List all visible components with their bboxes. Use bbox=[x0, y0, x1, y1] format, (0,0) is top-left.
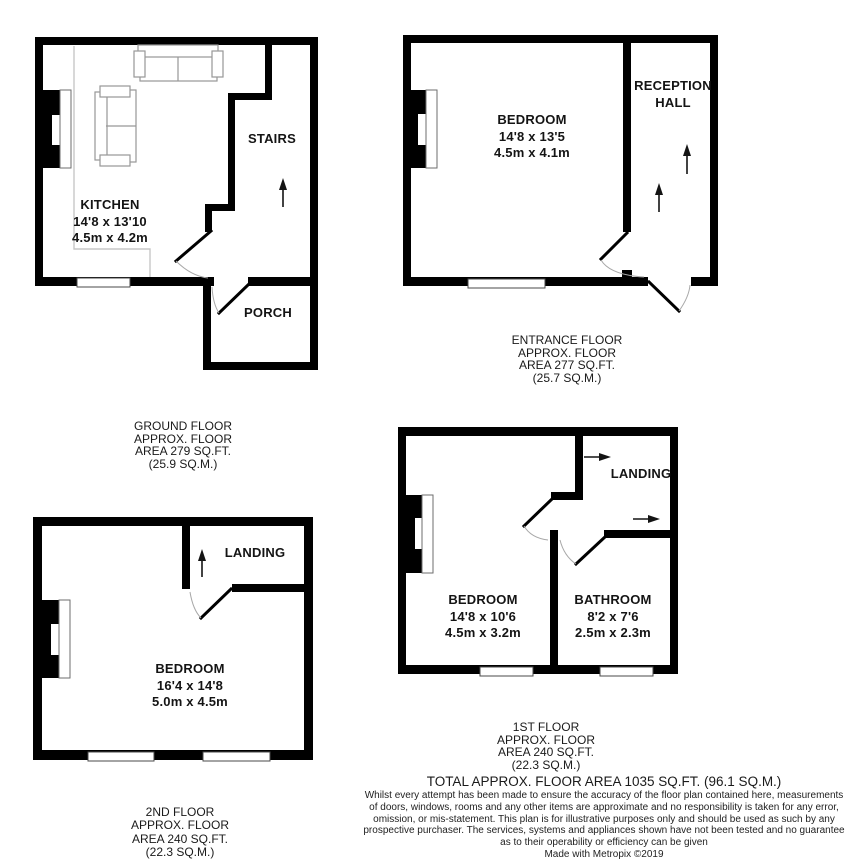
reception-hall-room-label: RECEPTION HALL bbox=[616, 77, 730, 111]
second-bedroom-metric-dims: 5.0m x 4.5m bbox=[120, 694, 260, 711]
entrance-caption-line1: ENTRANCE FLOOR bbox=[491, 334, 643, 347]
ground-stairs-up-arrow-icon bbox=[279, 178, 287, 207]
first-caption-line1: 1ST FLOOR bbox=[470, 721, 622, 734]
second-landing-room-label: LANDING bbox=[217, 545, 293, 562]
stairs-name: STAIRS bbox=[236, 131, 308, 148]
ground-caption-line4: (25.9 SQ.M.) bbox=[107, 458, 259, 471]
second-landing-door bbox=[190, 589, 231, 618]
reception-hall-up-arrow-icon bbox=[683, 144, 691, 174]
disclaimer-text: Whilst every attempt has been made to en… bbox=[360, 790, 848, 861]
stairs-room-label: STAIRS bbox=[236, 131, 308, 148]
bathroom-name: BATHROOM bbox=[545, 592, 681, 609]
entrance-bedroom-imperial-dims: 14'8 x 13'5 bbox=[462, 129, 602, 146]
first-landing-name: LANDING bbox=[603, 466, 679, 483]
entrance-caption-line4: (25.7 SQ.M.) bbox=[491, 372, 643, 385]
porch-room-label: PORCH bbox=[232, 305, 304, 322]
ground-floor-caption: GROUND FLOOR APPROX. FLOOR AREA 279 SQ.F… bbox=[107, 420, 259, 470]
reception-hall-line2: HALL bbox=[616, 94, 730, 111]
first-bedroom-metric-dims: 4.5m x 3.2m bbox=[413, 625, 553, 642]
ground-caption-line3: AREA 279 SQ.FT. bbox=[107, 445, 259, 458]
ground-caption-line1: GROUND FLOOR bbox=[107, 420, 259, 433]
first-caption-line3: AREA 240 SQ.FT. bbox=[470, 746, 622, 759]
ground-kitchen-door bbox=[176, 231, 211, 278]
entrance-bedroom-name: BEDROOM bbox=[462, 112, 602, 129]
disclaimer-line2: of doors, windows, rooms and any other i… bbox=[360, 802, 848, 814]
reception-hall-line1: RECEPTION bbox=[616, 77, 730, 94]
disclaimer-line4: prospective purchaser. The services, sys… bbox=[360, 825, 848, 837]
sofa-large bbox=[134, 45, 223, 81]
kitchen-imperial-dims: 14'8 x 13'10 bbox=[45, 214, 175, 231]
second-landing-up-arrow-icon bbox=[198, 549, 206, 577]
second-caption-line2: APPROX. FLOOR bbox=[104, 819, 256, 832]
disclaimer-line5: as to their operability or efficiency ca… bbox=[360, 837, 848, 849]
second-landing-name: LANDING bbox=[217, 545, 293, 562]
second-bedroom-name: BEDROOM bbox=[120, 661, 260, 678]
first-landing-right-arrow-icon bbox=[584, 453, 611, 461]
disclaimer-line1: Whilst every attempt has been made to en… bbox=[360, 790, 848, 802]
entrance-floor-caption: ENTRANCE FLOOR APPROX. FLOOR AREA 277 SQ… bbox=[491, 334, 643, 384]
disclaimer-line3: omission, or mis-statement. This plan is… bbox=[360, 814, 848, 826]
metropix-credit: Made with Metropix ©2019 bbox=[360, 849, 848, 861]
entrance-bedroom-metric-dims: 4.5m x 4.1m bbox=[462, 145, 602, 162]
bathroom-room-label: BATHROOM 8'2 x 7'6 2.5m x 2.3m bbox=[545, 592, 681, 642]
second-caption-line1: 2ND FLOOR bbox=[104, 806, 256, 819]
entrance-floor-plan bbox=[403, 35, 718, 288]
first-floor-caption: 1ST FLOOR APPROX. FLOOR AREA 240 SQ.FT. … bbox=[470, 721, 622, 771]
first-landing-room-label: LANDING bbox=[603, 466, 679, 483]
kitchen-metric-dims: 4.5m x 4.2m bbox=[45, 230, 175, 247]
first-bathroom-door bbox=[560, 536, 606, 564]
bathroom-metric-dims: 2.5m x 2.3m bbox=[545, 625, 681, 642]
second-bedroom-room-label: BEDROOM 16'4 x 14'8 5.0m x 4.5m bbox=[120, 661, 260, 711]
porch-name: PORCH bbox=[232, 305, 304, 322]
first-landing-right-arrow-icon-2 bbox=[633, 515, 660, 523]
floorplan-sheet: KITCHEN 14'8 x 13'10 4.5m x 4.2m STAIRS … bbox=[0, 0, 848, 866]
first-bedroom-imperial-dims: 14'8 x 10'6 bbox=[413, 609, 553, 626]
second-caption-line4: (22.3 SQ.M.) bbox=[104, 846, 256, 859]
kitchen-name: KITCHEN bbox=[45, 197, 175, 214]
first-bedroom-door bbox=[524, 499, 552, 540]
second-floor-caption: 2ND FLOOR APPROX. FLOOR AREA 240 SQ.FT. … bbox=[104, 806, 256, 860]
entrance-caption-line3: AREA 277 SQ.FT. bbox=[491, 359, 643, 372]
second-bedroom-imperial-dims: 16'4 x 14'8 bbox=[120, 678, 260, 695]
bathroom-imperial-dims: 8'2 x 7'6 bbox=[545, 609, 681, 626]
total-floor-area: TOTAL APPROX. FLOOR AREA 1035 SQ.FT. (96… bbox=[380, 774, 828, 789]
entrance-front-door bbox=[649, 282, 690, 311]
first-bedroom-room-label: BEDROOM 14'8 x 10'6 4.5m x 3.2m bbox=[413, 592, 553, 642]
reception-hall-up-arrow-icon-2 bbox=[655, 183, 663, 212]
entrance-bedroom-room-label: BEDROOM 14'8 x 13'5 4.5m x 4.1m bbox=[462, 112, 602, 162]
second-caption-line3: AREA 240 SQ.FT. bbox=[104, 833, 256, 846]
first-bedroom-name: BEDROOM bbox=[413, 592, 553, 609]
kitchen-room-label: KITCHEN 14'8 x 13'10 4.5m x 4.2m bbox=[45, 197, 175, 247]
sofa-small bbox=[95, 86, 136, 166]
first-caption-line4: (22.3 SQ.M.) bbox=[470, 759, 622, 772]
